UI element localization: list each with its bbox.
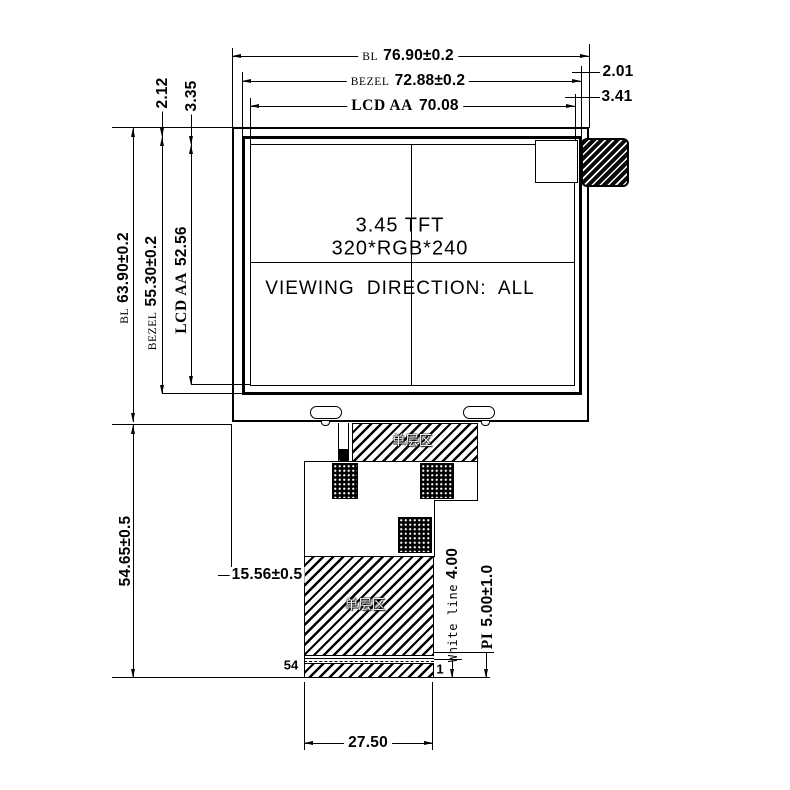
dim-prefix: BEZEL: [351, 76, 390, 88]
dim-label-right-offset-2: 3.41: [598, 89, 637, 105]
dim-value: 52.56: [173, 226, 190, 266]
mounting-slot-left: [310, 406, 342, 419]
dim-line-bezel-height: [162, 137, 163, 394]
dim-prefix: White line: [446, 584, 460, 662]
dim-value: 55.30±0.2: [143, 236, 160, 307]
arrowhead: [250, 104, 259, 108]
arrowhead: [572, 79, 581, 83]
panel-size-text: 3.45 TFT: [356, 215, 445, 238]
dim-prefix: LCD AA: [351, 97, 413, 114]
dim-prefix: BL: [362, 51, 378, 63]
dim-value: 54.65±0.5: [117, 516, 134, 587]
fpc-outline: [477, 462, 478, 501]
edge-notch-right: [481, 421, 490, 426]
corner-pad-outline: [535, 140, 578, 183]
dim-value: 4.00: [444, 548, 461, 579]
dim-label-bl-height: BL63.90±0.2: [116, 229, 132, 327]
dim-prefix: LCD AA: [173, 272, 190, 334]
dim-prefix: BEZEL: [147, 311, 159, 350]
extension-line: [112, 677, 490, 678]
dim-label-bezel-height: BEZEL55.30±0.2: [144, 233, 160, 353]
dim-label-bl-width: BL76.90±0.2: [358, 48, 458, 64]
lcd-module-drawing: BL76.90±0.2 BEZEL72.88±0.2 LCD AA70.08 2…: [0, 0, 790, 790]
leader-line: [162, 393, 243, 394]
fpc-pad-block-a: [332, 463, 358, 499]
edge-notch-left: [321, 421, 330, 426]
arrowhead: [189, 145, 193, 154]
single-layer-label-top: 单层区: [392, 429, 433, 449]
dim-value: 3.41: [602, 88, 633, 105]
fpc-pad-block-b: [420, 463, 454, 499]
single-layer-label-bottom: 单层区: [345, 593, 386, 613]
extension-line: [232, 48, 233, 128]
extension-line: [432, 682, 433, 750]
leader-line: [565, 97, 600, 98]
dim-label-pi: PI5.00±1.0: [480, 562, 496, 653]
leader-line: [572, 72, 600, 73]
dim-label-white-line: White line4.00: [445, 545, 461, 665]
arrowhead: [131, 669, 135, 678]
dim-label-right-offset-1: 2.01: [599, 64, 638, 80]
dim-label-aa-width: LCD AA70.08: [347, 98, 463, 114]
dim-value: 70.08: [419, 97, 459, 114]
extension-line: [581, 66, 582, 137]
dim-label-fpc-offset: 15.56±0.5: [230, 567, 305, 583]
dim-label-top-offset-1: 2.12: [155, 75, 171, 112]
arrowhead: [232, 54, 241, 58]
extension-line: [575, 94, 576, 145]
center-line-horizontal: [251, 262, 574, 263]
dim-label-aa-height: LCD AA52.56: [174, 223, 190, 337]
dim-label-total-height: 54.65±0.5: [118, 513, 134, 590]
fpc-pad-block-c: [398, 517, 432, 553]
dim-value: 63.90±0.2: [115, 232, 132, 303]
arrowhead: [424, 741, 433, 745]
corner-component-block: [581, 138, 629, 187]
dim-value: 2.12: [154, 78, 171, 109]
arrowhead: [189, 376, 193, 385]
mounting-slot-right: [463, 406, 495, 419]
arrowhead: [484, 669, 488, 678]
dim-value: 2.01: [603, 63, 634, 80]
panel-resolution-text: 320*RGB*240: [332, 238, 469, 261]
arrowhead: [131, 425, 135, 434]
dim-line-aa-height: [191, 145, 192, 385]
dim-value: 15.56±0.5: [232, 566, 303, 583]
arrowhead: [160, 137, 164, 146]
dim-value: 76.90±0.2: [383, 47, 454, 64]
pin-number-left: 54: [283, 659, 299, 672]
arrowhead: [242, 79, 251, 83]
dim-value: 72.88±0.2: [395, 72, 466, 89]
dim-label-tail-width: 27.50: [344, 735, 392, 751]
arrowhead: [160, 128, 164, 137]
arrowhead: [566, 104, 575, 108]
white-line-border: [304, 658, 434, 659]
extension-line: [304, 682, 305, 750]
dim-value: 5.00±1.0: [479, 565, 496, 627]
dim-label-bezel-width: BEZEL72.88±0.2: [347, 73, 469, 89]
arrowhead: [131, 128, 135, 137]
arrowhead: [189, 136, 193, 145]
center-line-vertical: [411, 145, 412, 385]
arrowhead: [450, 669, 454, 678]
dim-prefix: PI: [479, 633, 496, 650]
dim-prefix: BL: [119, 308, 131, 324]
fpc-outline: [434, 500, 435, 557]
arrowhead: [131, 413, 135, 422]
fpc-contact-strip: [304, 663, 434, 678]
leader-line: [191, 384, 251, 385]
extension-line: [231, 425, 232, 578]
arrowhead: [160, 385, 164, 394]
active-area-outline: [250, 144, 575, 386]
dim-value: 27.50: [348, 734, 388, 751]
fpc-outline: [435, 500, 478, 501]
pin-number-right: 1: [435, 663, 444, 676]
white-line-dashed-centerline: [304, 661, 434, 662]
arrowhead: [304, 741, 313, 745]
arrowhead: [580, 54, 589, 58]
dim-value: 3.35: [183, 81, 200, 112]
dim-label-top-offset-2: 3.35: [184, 78, 200, 115]
dim-line-bl-height: [133, 128, 134, 422]
panel-viewing-direction-text: VIEWING DIRECTION: ALL: [265, 278, 534, 300]
